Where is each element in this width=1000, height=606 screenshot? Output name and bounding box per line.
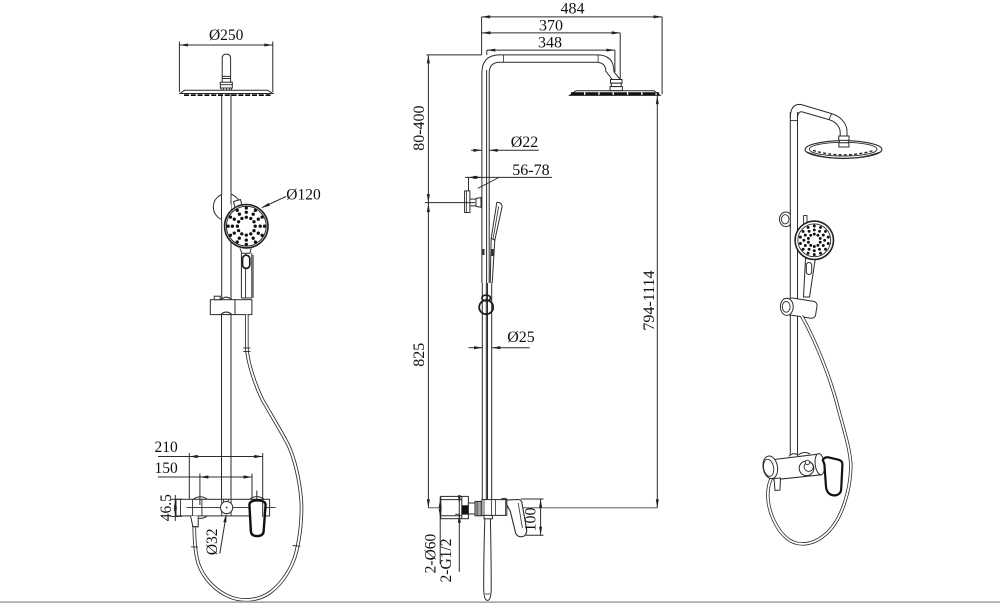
svg-text:2-Ø60: 2-Ø60 <box>423 533 440 573</box>
svg-text:348: 348 <box>538 35 562 52</box>
svg-text:Ø250: Ø250 <box>209 27 244 44</box>
svg-text:210: 210 <box>155 439 179 456</box>
svg-text:56-78: 56-78 <box>512 162 549 179</box>
svg-text:80-400: 80-400 <box>411 105 428 150</box>
svg-text:2-G1/2: 2-G1/2 <box>438 539 455 583</box>
svg-text:Ø25: Ø25 <box>507 329 535 346</box>
svg-text:370: 370 <box>539 18 563 35</box>
svg-text:100: 100 <box>523 508 540 532</box>
svg-text:150: 150 <box>155 460 179 477</box>
svg-text:Ø22: Ø22 <box>511 134 539 151</box>
svg-text:Ø32: Ø32 <box>204 528 221 555</box>
svg-text:825: 825 <box>411 343 428 367</box>
svg-text:484: 484 <box>561 1 585 18</box>
svg-text:794-1114: 794-1114 <box>641 270 658 330</box>
svg-text:Ø120: Ø120 <box>286 187 321 204</box>
svg-text:46.5: 46.5 <box>158 494 175 521</box>
